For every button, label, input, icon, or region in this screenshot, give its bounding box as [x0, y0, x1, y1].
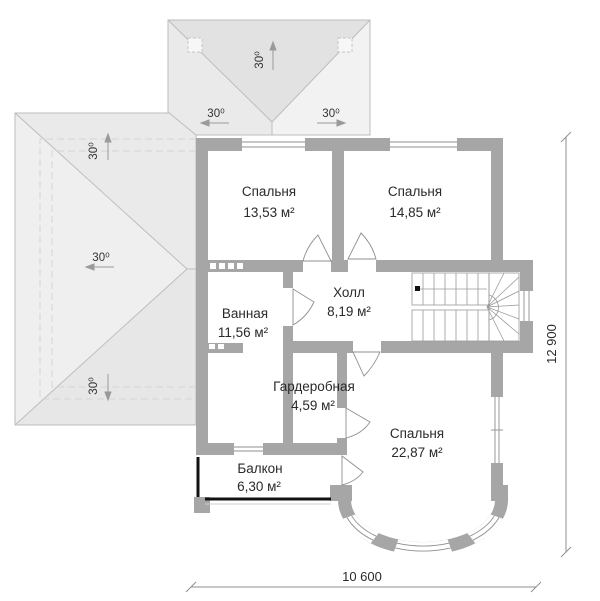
roof-top: 30⁰ 30⁰ 30⁰ — [168, 20, 370, 135]
room-area: 4,59 м² — [291, 398, 335, 413]
room-area: 14,85 м² — [389, 205, 441, 220]
wall-left — [196, 138, 208, 455]
room-name: Гардеробная — [273, 379, 355, 394]
room-name: Спальня — [390, 426, 444, 441]
room-name: Ванная — [222, 306, 268, 321]
wall-bedroom-divider — [332, 151, 344, 260]
dimension-height-label: 12 900 — [544, 324, 559, 364]
roof-slope-label: 30⁰ — [322, 108, 340, 120]
dimension-line — [561, 132, 571, 557]
wall-balcony-top — [196, 443, 347, 455]
room-name: Балкон — [237, 461, 282, 476]
roof-slope-label: 30⁰ — [207, 108, 225, 120]
roof-slope-label: 30⁰ — [254, 51, 266, 69]
room-area: 13,53 м² — [243, 205, 295, 220]
room-area: 6,30 м² — [237, 479, 281, 494]
room-name: Холл — [333, 285, 365, 300]
wall-right-upper — [491, 151, 503, 260]
wall-bay-left-chunk — [330, 485, 352, 501]
room-name: Спальня — [388, 184, 442, 199]
roof-slope-label: 30⁰ — [92, 252, 110, 264]
room-area: 22,87 м² — [391, 445, 443, 460]
room-area: 8,19 м² — [327, 304, 371, 319]
dimension-width-label: 10 600 — [342, 569, 382, 584]
dimension-bottom: 10 600 — [186, 569, 541, 592]
roof-slope-label: 30⁰ — [88, 377, 100, 395]
wall-bay-right-chunk — [491, 485, 508, 501]
room-name: Спальня — [242, 184, 296, 199]
floor-plan-drawing: 30⁰ 30⁰ 30⁰ 30⁰ 30⁰ — [0, 0, 600, 601]
roof-left: 30⁰ 30⁰ 30⁰ — [15, 113, 196, 425]
room-area: 11,56 м² — [218, 325, 269, 340]
stair-start-marker — [415, 286, 420, 291]
roof-slope-label: 30⁰ — [88, 142, 100, 160]
dimension-right: 12 900 — [544, 132, 571, 557]
floor-plan-page: 30⁰ 30⁰ 30⁰ 30⁰ 30⁰ — [0, 0, 600, 601]
